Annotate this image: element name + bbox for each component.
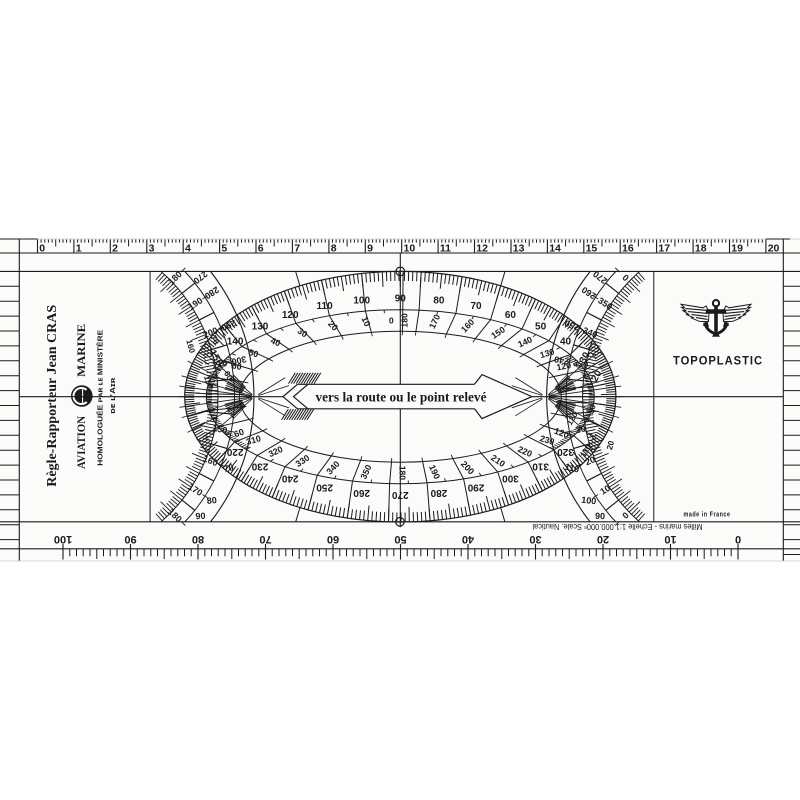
svg-text:Milles marins - Echelle 1:1.00: Milles marins - Echelle 1:1.000.000ᵉ Sca… — [532, 522, 702, 531]
svg-text:vers la route ou le point rele: vers la route ou le point relevé — [316, 390, 487, 405]
svg-text:made in France: made in France — [684, 510, 731, 519]
svg-text:70: 70 — [259, 533, 271, 545]
svg-text:100: 100 — [581, 495, 597, 507]
svg-text:HOMOLOGUÉE ᴘᴀʀ ʟᴇ MINISTÈRE: HOMOLOGUÉE ᴘᴀʀ ʟᴇ MINISTÈRE — [95, 330, 104, 466]
svg-text:60: 60 — [505, 310, 517, 321]
svg-text:320: 320 — [557, 446, 574, 457]
svg-text:50: 50 — [535, 322, 547, 333]
svg-text:90: 90 — [124, 533, 136, 545]
svg-text:120: 120 — [282, 310, 299, 321]
svg-text:130: 130 — [252, 322, 269, 333]
svg-text:280: 280 — [430, 487, 447, 498]
svg-text:100: 100 — [353, 296, 370, 307]
svg-text:110: 110 — [317, 301, 334, 312]
svg-text:300: 300 — [502, 473, 519, 484]
svg-text:20: 20 — [597, 533, 609, 545]
svg-text:10: 10 — [664, 533, 676, 545]
svg-text:AVIATION: AVIATION — [76, 415, 88, 469]
svg-text:Règle-Rapporteur Jean CRAS: Règle-Rapporteur Jean CRAS — [45, 305, 60, 487]
svg-text:220: 220 — [226, 446, 243, 457]
svg-text:0: 0 — [735, 533, 741, 545]
svg-text:80: 80 — [192, 533, 204, 545]
svg-text:50: 50 — [394, 533, 406, 545]
svg-text:80: 80 — [206, 495, 217, 506]
svg-text:70: 70 — [470, 301, 482, 312]
svg-text:100: 100 — [54, 533, 72, 545]
svg-text:80: 80 — [433, 296, 445, 307]
svg-text:310: 310 — [532, 461, 549, 472]
svg-text:40: 40 — [462, 533, 474, 545]
svg-text:30: 30 — [575, 423, 587, 435]
svg-text:90: 90 — [195, 511, 206, 522]
svg-text:250: 250 — [316, 482, 333, 493]
svg-text:40: 40 — [560, 336, 572, 347]
svg-text:ᴅᴇ ʟ’Aɪʀ: ᴅᴇ ʟ’Aɪʀ — [108, 377, 117, 414]
svg-text:230: 230 — [251, 461, 268, 472]
svg-text:0: 0 — [389, 315, 394, 325]
svg-text:290: 290 — [467, 482, 484, 493]
svg-text:140: 140 — [227, 336, 244, 347]
svg-text:60: 60 — [327, 533, 339, 545]
svg-text:MARINE: MARINE — [76, 324, 88, 377]
svg-text:180: 180 — [397, 466, 407, 481]
svg-text:90: 90 — [595, 511, 606, 522]
svg-text:TOPOPLASTIC: TOPOPLASTIC — [673, 354, 763, 368]
svg-text:240: 240 — [281, 473, 298, 484]
svg-text:260: 260 — [353, 487, 370, 498]
svg-text:30: 30 — [529, 533, 541, 545]
